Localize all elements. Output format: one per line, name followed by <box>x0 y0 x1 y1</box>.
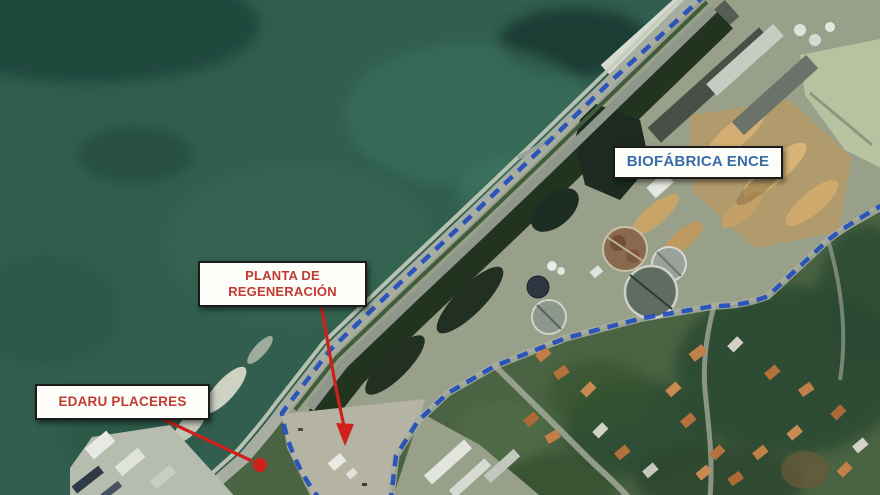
screenshot-root: BIOFÁBRICA ENCE PLANTA DE REGENERACIÓN E… <box>0 0 880 495</box>
field-patch <box>781 451 829 489</box>
label-planta-text: PLANTA DE REGENERACIÓN <box>208 268 357 301</box>
label-biofabrica-text: BIOFÁBRICA ENCE <box>627 153 769 172</box>
satellite-map <box>0 0 880 495</box>
gas-dome <box>527 276 549 298</box>
label-planta-regeneracion: PLANTA DE REGENERACIÓN <box>198 261 367 307</box>
label-edaru-text: EDARU PLACERES <box>58 394 186 411</box>
label-edaru-placeres: EDARU PLACERES <box>35 384 210 420</box>
edaru-arrow-dot <box>253 458 267 472</box>
label-biofabrica-ence: BIOFÁBRICA ENCE <box>613 146 783 179</box>
